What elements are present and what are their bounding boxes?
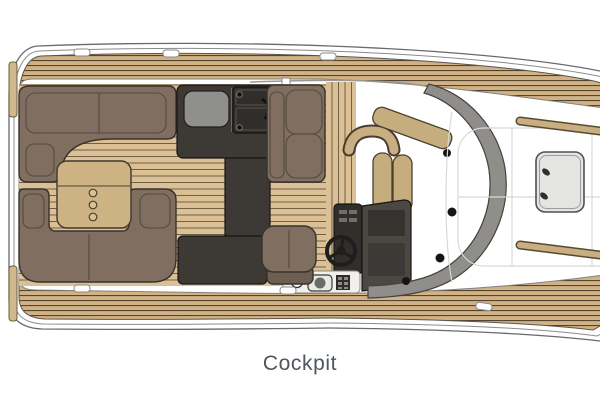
deck-plan-drawing — [0, 0, 600, 400]
sink-drain-bottom — [237, 125, 243, 131]
transom-teak-step-bottom — [9, 266, 17, 321]
cleat-icon — [163, 50, 179, 57]
cleat-icon — [74, 285, 90, 292]
deck-plan: Cockpit — [0, 0, 600, 400]
cleat-icon — [74, 49, 90, 56]
cockpit-table — [57, 161, 131, 228]
cleat-icon — [280, 287, 296, 294]
transom-teak-step-top — [9, 62, 17, 117]
deck-caption: Cockpit — [0, 352, 600, 376]
console-screen — [368, 210, 405, 236]
forward-sofa — [267, 85, 325, 182]
sink-drain-top — [237, 92, 243, 98]
console-panel — [368, 243, 405, 276]
cupholders — [89, 189, 97, 221]
throttle-knob — [315, 278, 326, 289]
galley-floor-mat — [178, 236, 267, 284]
bow-hatch — [536, 152, 584, 212]
galley-floor-column — [225, 157, 270, 238]
grill — [184, 91, 229, 127]
cleat-icon — [320, 53, 336, 60]
